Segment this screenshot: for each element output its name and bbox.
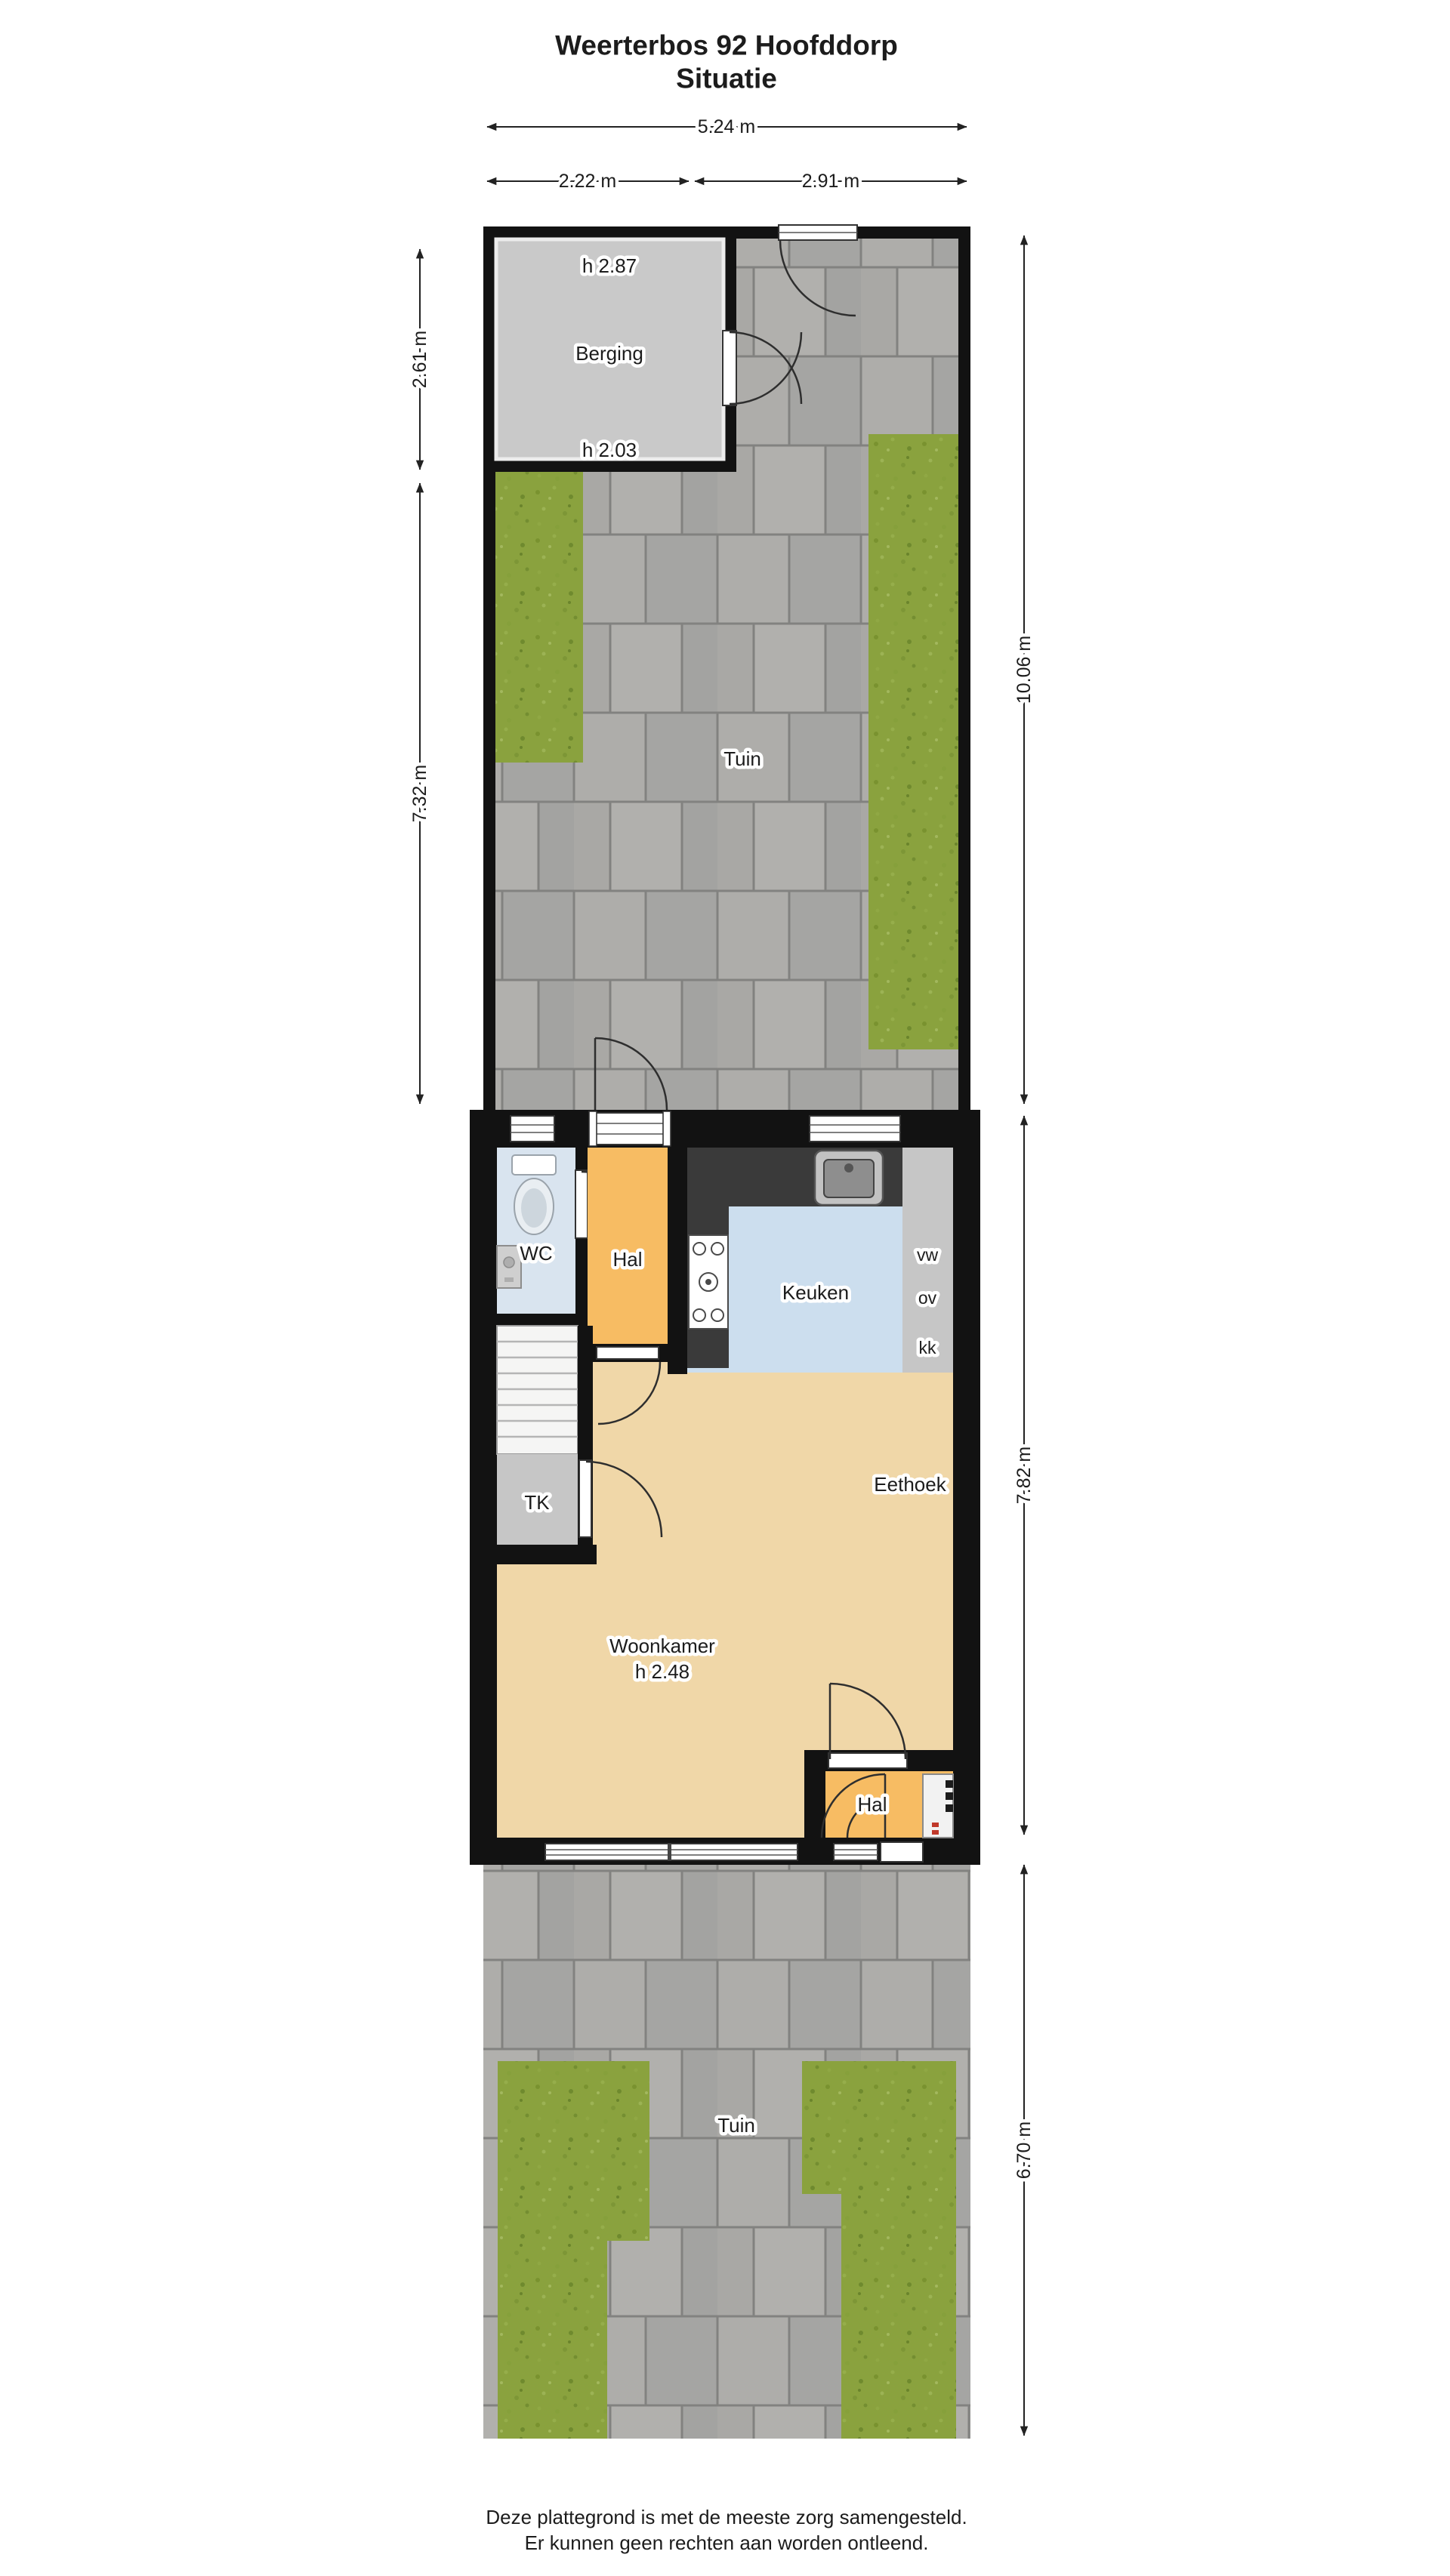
floorplan-page: 5.24 m 2.22 m 2.91 m 2.61 m 7.32 m 10.06…: [0, 0, 1450, 2576]
kitchen-window: [810, 1116, 900, 1142]
front-garden-grass-left-lower: [498, 2241, 607, 2439]
back-garden-grass-left: [495, 472, 583, 763]
dim-right-front-garden: 6.70 m: [1013, 2122, 1035, 2179]
tk-label: TK: [524, 1491, 550, 1514]
footer-line2: Er kunnen geen rechten aan worden ontlee…: [525, 2531, 929, 2554]
oven-label: ov: [918, 1288, 937, 1308]
wc-label: WC: [520, 1242, 552, 1265]
wc-door: [575, 1170, 588, 1238]
page-subtitle: Situatie: [676, 63, 777, 94]
dim-top-left: 2.22 m: [559, 171, 616, 192]
toilet-icon: [512, 1155, 556, 1234]
hall-window: [834, 1844, 878, 1860]
front-garden: [483, 1865, 970, 2439]
dim-top-right: 2.91 m: [802, 171, 859, 192]
back-garden-label: Tuin: [723, 747, 761, 770]
berging-height-top: h 2.87: [582, 254, 637, 277]
dim-right-back-garden: 10.06 m: [1013, 636, 1035, 704]
stairs: [497, 1326, 578, 1454]
dim-right-house: 7.82 m: [1013, 1447, 1035, 1504]
hall-upper-label: Hal: [612, 1248, 642, 1271]
hall-lower-label: Hal: [857, 1793, 887, 1816]
living-window: [545, 1844, 797, 1860]
kitchen: [668, 1148, 953, 1374]
footer-line1: Deze plattegrond is met de meeste zorg s…: [486, 2506, 967, 2528]
dim-left-garden: 7.32 m: [409, 765, 430, 822]
back-garden-grass-right: [868, 434, 958, 1049]
back-door-opening: [589, 1111, 671, 1146]
kitchen-sink-icon: [815, 1151, 883, 1205]
floorplan-drawing: 5.24 m 2.22 m 2.91 m 2.61 m 7.32 m 10.06…: [0, 0, 1450, 2576]
dim-top-total: 5.24 m: [698, 116, 755, 137]
stove-icon: [689, 1235, 728, 1329]
living-height: h 2.48: [635, 1660, 690, 1683]
back-garden: [483, 225, 970, 1125]
dishwasher-label: vw: [917, 1245, 939, 1265]
hall-upper-floor: [588, 1148, 668, 1344]
wc-sink-icon: [497, 1246, 521, 1288]
berging-door: [723, 331, 736, 405]
wc-window: [511, 1116, 554, 1142]
front-garden-label: Tuin: [717, 2114, 755, 2137]
front-garden-grass-left: [498, 2061, 649, 2241]
living-label: Woonkamer: [609, 1635, 715, 1657]
front-garden-grass-right-lower: [841, 2194, 956, 2439]
page-title: Weerterbos 92 Hoofddorp: [555, 30, 898, 61]
berging-label: Berging: [575, 342, 643, 365]
hall-lower-door: [828, 1753, 907, 1768]
tk-door: [579, 1460, 591, 1537]
dining-label: Eethoek: [874, 1473, 946, 1496]
kitchen-label: Keuken: [782, 1281, 849, 1304]
fridge-label: kk: [919, 1338, 937, 1357]
dim-left-berging: 2.61 m: [409, 331, 430, 388]
front-door: [881, 1842, 923, 1862]
hall-living-door: [597, 1347, 659, 1359]
berging-height-bottom: h 2.03: [582, 439, 637, 461]
front-garden-grass-right: [802, 2061, 956, 2194]
meter-cabinet: [923, 1774, 953, 1838]
